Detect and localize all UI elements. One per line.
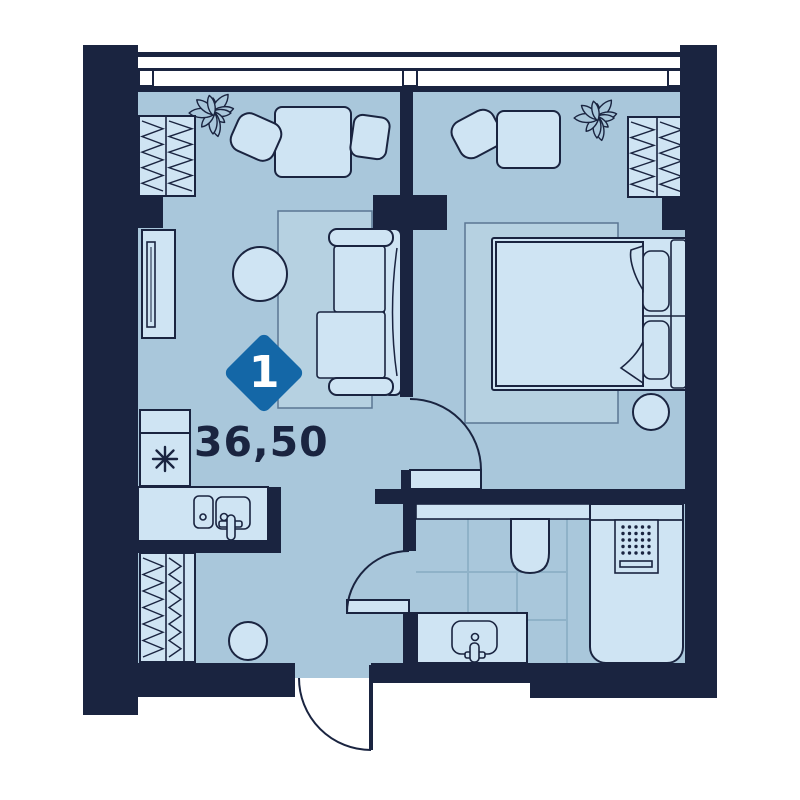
area-label: 36,50: [194, 418, 329, 466]
soap-tray: [620, 561, 652, 567]
sofa-chaise: [317, 312, 385, 378]
bedroom-wardrobe: [628, 117, 685, 197]
wall-bottom-left: [138, 663, 295, 697]
headboard: [671, 240, 686, 388]
bathtub: [590, 504, 683, 663]
bedroom-side-table: [497, 111, 560, 168]
window-mullion: [403, 70, 417, 86]
wall-left: [83, 45, 138, 715]
coffee-table: [233, 247, 287, 301]
wall-partition-block: [373, 195, 447, 230]
wall-partition-upper: [400, 92, 413, 195]
wall-bottom-mid: [371, 663, 530, 683]
tv-stand: [142, 230, 175, 338]
dining-table: [275, 107, 351, 177]
floor-plan: 1 36,50: [0, 0, 800, 800]
wall-hall-bath-top: [375, 489, 685, 504]
vanity: [417, 613, 527, 663]
wall-right: [685, 45, 717, 698]
wall-bath-left-lower: [403, 612, 416, 663]
wall-bath-left-upper: [403, 504, 416, 551]
door-leaf: [347, 600, 409, 613]
sofa-armrest: [329, 229, 393, 246]
rooms-count: 1: [249, 351, 280, 395]
wall-kitchen-bottom: [138, 541, 281, 553]
door-swing-arc: [299, 678, 371, 750]
wall-bottom-right: [530, 663, 685, 698]
wall-stub-left: [138, 195, 163, 228]
sofa-seat: [334, 246, 385, 312]
dining-chair-right: [349, 114, 390, 161]
pillow: [643, 251, 669, 311]
door-leaf: [369, 665, 373, 750]
blanket: [496, 242, 643, 386]
kitchen-cabinet: [140, 410, 190, 434]
wall-partition-lower: [400, 230, 413, 397]
toilet: [511, 519, 549, 573]
nightstand: [633, 394, 669, 430]
wall-stub-right: [662, 197, 685, 230]
window-mullion: [668, 70, 682, 86]
sofa-armrest: [329, 378, 393, 395]
snowflake-icon: [153, 447, 177, 471]
wardrobe-living: [139, 116, 195, 196]
stool: [229, 622, 267, 660]
window: [138, 52, 682, 92]
door-leaf: [410, 470, 481, 489]
floor-plan-drawing: [0, 0, 800, 800]
pillow: [643, 321, 669, 379]
bed: [492, 238, 687, 390]
entrance-threshold: [295, 663, 371, 678]
window-mullion: [139, 70, 153, 86]
hall-wardrobe: [140, 553, 195, 662]
